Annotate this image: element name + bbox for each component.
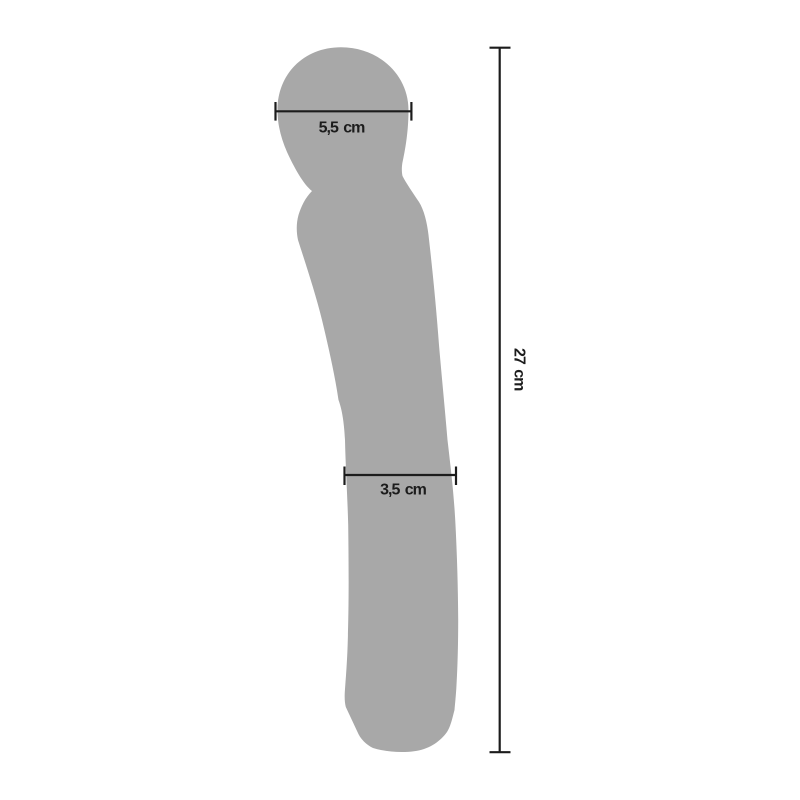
- svg-text:3,5 cm: 3,5 cm: [380, 482, 427, 499]
- svg-text:5,5 cm: 5,5 cm: [319, 120, 366, 137]
- svg-text:27 cm: 27 cm: [511, 348, 528, 391]
